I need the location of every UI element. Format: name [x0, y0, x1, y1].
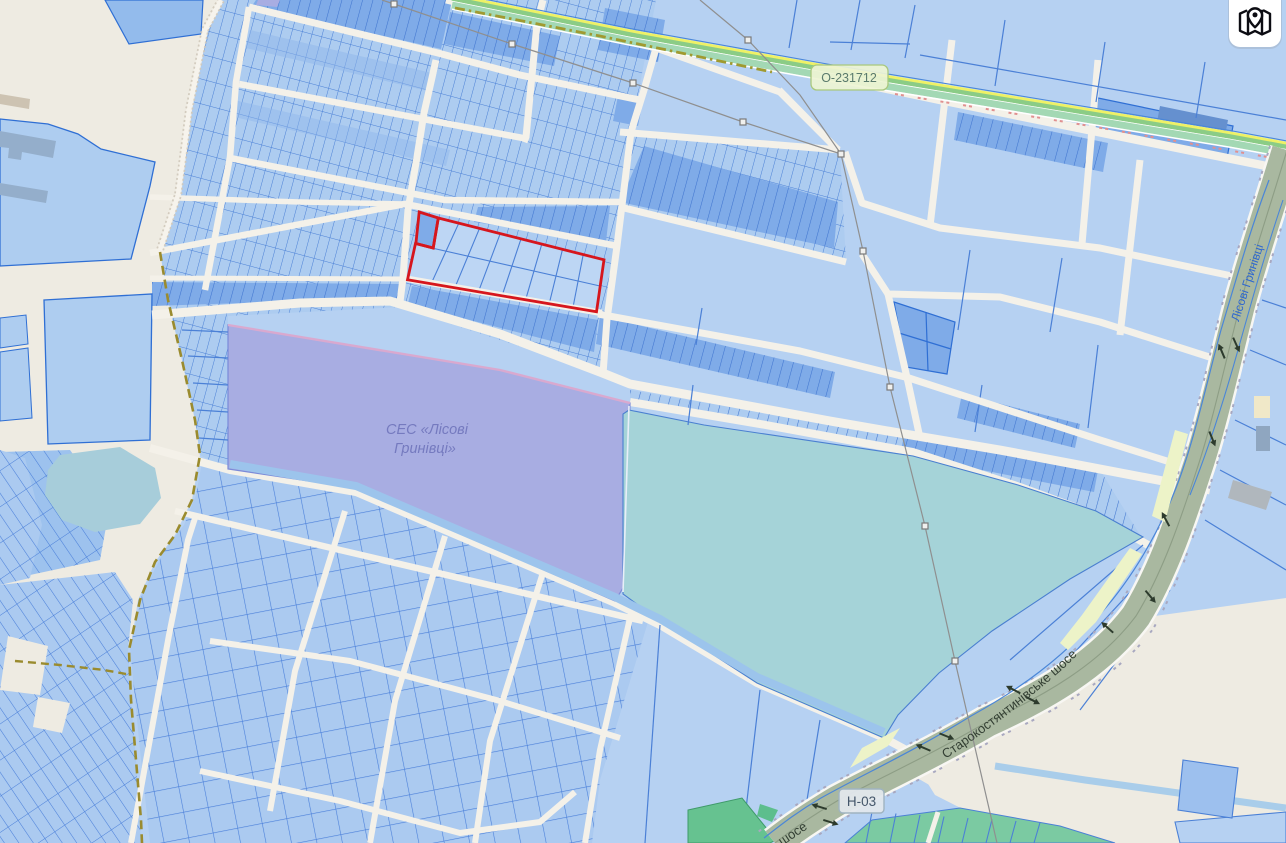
svg-text:Гринівці»: Гринівці» [394, 441, 456, 457]
svg-text:О-231712: О-231712 [821, 71, 877, 85]
svg-text:СЕС «Лісові: СЕС «Лісові [386, 422, 469, 438]
svg-text:Н-03: Н-03 [847, 794, 876, 809]
